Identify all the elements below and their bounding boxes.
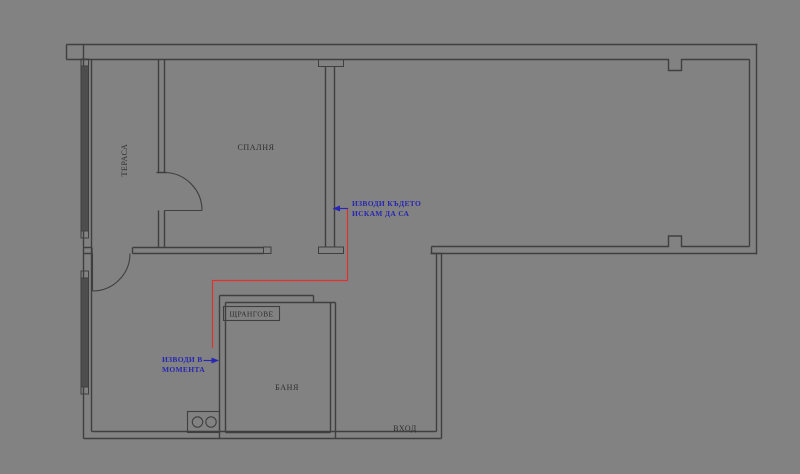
entry-corridor-wall bbox=[431, 254, 442, 439]
bedroom-bottom-wall bbox=[133, 247, 272, 254]
desired-outlets-line2: ИСКАМ ДА СА bbox=[352, 209, 410, 218]
outer-walls bbox=[67, 45, 758, 439]
living-room-bottom-wall bbox=[432, 236, 757, 254]
kitchen-fixture bbox=[188, 412, 220, 433]
terrace-label: ТЕРАСА bbox=[120, 144, 129, 177]
floor-plan-canvas: ТЕРАСА СПАЛНЯ БАНЯ ЩРАНГОВЕ ВХОД ИЗВОДИ … bbox=[0, 0, 800, 474]
current-outlets-line2: МОМЕНТА bbox=[162, 365, 205, 374]
entrance-label: ВХОД bbox=[393, 424, 417, 433]
terrace-bottom-wall bbox=[84, 248, 93, 254]
risers-label: ЩРАНГОВЕ bbox=[230, 310, 274, 319]
bathroom-label: БАНЯ bbox=[275, 383, 299, 392]
terrace-bedroom-wall bbox=[157, 60, 167, 248]
bedroom-living-wall bbox=[319, 60, 344, 254]
current-outlets-arrow-icon bbox=[204, 358, 220, 364]
bedroom-door-arc bbox=[165, 173, 203, 211]
current-outlets-annotation: ИЗВОДИ В МОМЕНТА bbox=[162, 355, 205, 374]
floor-plan-screenshot: ТЕРАСА СПАЛНЯ БАНЯ ЩРАНГОВЕ ВХОД ИЗВОДИ … bbox=[0, 0, 800, 474]
current-outlets-line1: ИЗВОДИ В bbox=[162, 355, 203, 364]
terrace-door-arc bbox=[93, 254, 131, 292]
terrace-window-upper bbox=[81, 59, 89, 238]
terrace-window-lower bbox=[81, 271, 89, 394]
desired-outlets-line1: ИЗВОДИ КЪДЕТО bbox=[352, 199, 421, 208]
bedroom-label: СПАЛНЯ bbox=[237, 143, 274, 152]
desired-outlets-annotation: ИЗВОДИ КЪДЕТО ИСКАМ ДА СА bbox=[352, 199, 421, 218]
pipe-route-line bbox=[213, 208, 348, 348]
